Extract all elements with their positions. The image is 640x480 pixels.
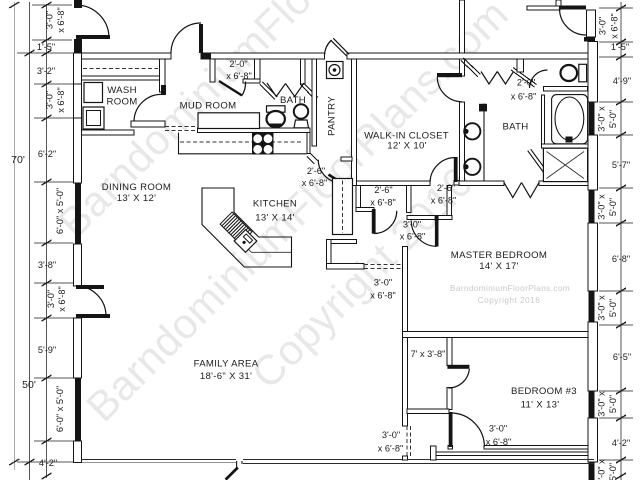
svg-text:3'-0": 3'-0"	[45, 11, 55, 29]
svg-text:2'-6": 2'-6"	[307, 166, 325, 176]
svg-text:KITCHEN: KITCHEN	[253, 199, 297, 210]
svg-text:5'-0": 5'-0"	[608, 198, 618, 216]
svg-text:5'-0": 5'-0"	[608, 463, 618, 480]
svg-text:x 6'-8": x 6'-8"	[370, 198, 395, 208]
svg-text:2'-6": 2'-6"	[374, 185, 392, 195]
svg-text:13' X 12': 13' X 12'	[117, 193, 156, 204]
svg-text:2'-0": 2'-0"	[229, 59, 247, 69]
svg-text:3'-2": 3'-2"	[37, 66, 55, 76]
svg-text:3'-0": 3'-0"	[403, 220, 421, 230]
svg-text:3'-0": 3'-0"	[382, 430, 400, 440]
svg-text:BATH: BATH	[280, 95, 306, 106]
svg-text:DINING ROOM: DINING ROOM	[102, 182, 171, 193]
svg-text:x 6'-8": x 6'-8"	[302, 178, 327, 188]
svg-text:x 6'-8": x 6'-8"	[56, 87, 66, 112]
svg-text:x 6'-8": x 6'-8"	[486, 437, 511, 447]
svg-text:3'-8": 3'-8"	[38, 260, 56, 270]
svg-text:6'-8": 6'-8"	[612, 254, 630, 264]
svg-text:3'-0" x: 3'-0" x	[597, 391, 607, 417]
svg-text:5'-0": 5'-0"	[608, 110, 618, 128]
svg-text:4'-2": 4'-2"	[39, 458, 57, 468]
svg-text:x 6'-8": x 6'-8"	[378, 444, 403, 454]
svg-text:50': 50'	[22, 379, 36, 391]
svg-text:14' X 17': 14' X 17'	[479, 261, 518, 272]
svg-text:WASH: WASH	[107, 85, 137, 96]
svg-text:1'-5": 1'-5"	[611, 42, 629, 52]
svg-text:x 6'-8": x 6'-8"	[511, 92, 536, 102]
svg-text:x 6'-8": x 6'-8"	[56, 7, 66, 32]
svg-text:FAMILY AREA: FAMILY AREA	[194, 359, 259, 370]
svg-text:4'-2": 4'-2"	[612, 438, 630, 448]
svg-text:3'-0" x: 3'-0" x	[597, 194, 607, 220]
svg-text:BarndominiumFloorPlans.com: BarndominiumFloorPlans.com	[450, 284, 570, 293]
svg-text:6'-0" x 5'-0": 6'-0" x 5'-0"	[55, 188, 65, 234]
svg-text:11' X 13': 11' X 13'	[521, 400, 560, 411]
svg-text:BEDROOM #3: BEDROOM #3	[511, 386, 577, 397]
svg-text:6'-0" x 5'-0": 6'-0" x 5'-0"	[55, 386, 65, 432]
svg-text:3'-0" x: 3'-0" x	[597, 459, 607, 480]
svg-text:x 6'-8": x 6'-8"	[57, 286, 67, 311]
svg-text:3'-0": 3'-0"	[374, 278, 392, 288]
svg-text:Copyright 2016: Copyright 2016	[478, 296, 541, 305]
svg-text:7' x 3'-8": 7' x 3'-8"	[411, 349, 446, 359]
svg-text:x 6'-8": x 6'-8"	[400, 232, 425, 242]
svg-text:18'-6" X 31': 18'-6" X 31'	[200, 371, 252, 382]
svg-text:2'-6": 2'-6"	[437, 183, 455, 193]
svg-text:MUD ROOM: MUD ROOM	[180, 101, 237, 112]
svg-text:3'-0" x: 3'-0" x	[597, 295, 607, 321]
svg-text:3'-0": 3'-0"	[489, 424, 507, 434]
svg-text:PANTRY: PANTRY	[327, 96, 338, 136]
svg-text:3'-0": 3'-0"	[45, 91, 55, 109]
svg-text:MASTER BEDROOM: MASTER BEDROOM	[451, 250, 547, 261]
svg-text:x 6'-8": x 6'-8"	[370, 291, 395, 301]
svg-text:x 6'-8": x 6'-8"	[431, 196, 456, 206]
svg-text:5'-0": 5'-0"	[608, 395, 618, 413]
svg-text:5'-0": 5'-0"	[608, 299, 618, 317]
svg-text:5'-9": 5'-9"	[38, 345, 56, 355]
svg-text:ROOM: ROOM	[106, 97, 137, 108]
svg-text:6'-5": 6'-5"	[613, 352, 631, 362]
svg-text:2'-0": 2'-0"	[517, 78, 535, 88]
svg-text:3'-0": 3'-0"	[598, 17, 608, 35]
svg-text:BATH: BATH	[502, 122, 528, 133]
svg-text:x 6'-8": x 6'-8"	[610, 13, 620, 38]
svg-text:13' X 14': 13' X 14'	[255, 213, 294, 224]
svg-text:6'-2": 6'-2"	[38, 149, 56, 159]
svg-text:3'-0" x: 3'-0" x	[597, 106, 607, 132]
svg-text:12' X 10': 12' X 10'	[387, 141, 426, 152]
svg-text:x 6'-8": x 6'-8"	[226, 71, 251, 81]
svg-text:1'-5": 1'-5"	[37, 42, 55, 52]
svg-text:4'-9": 4'-9"	[613, 76, 631, 86]
svg-text:3'-0": 3'-0"	[46, 290, 56, 308]
svg-text:70': 70'	[11, 154, 25, 166]
svg-text:5'-7": 5'-7"	[612, 160, 630, 170]
